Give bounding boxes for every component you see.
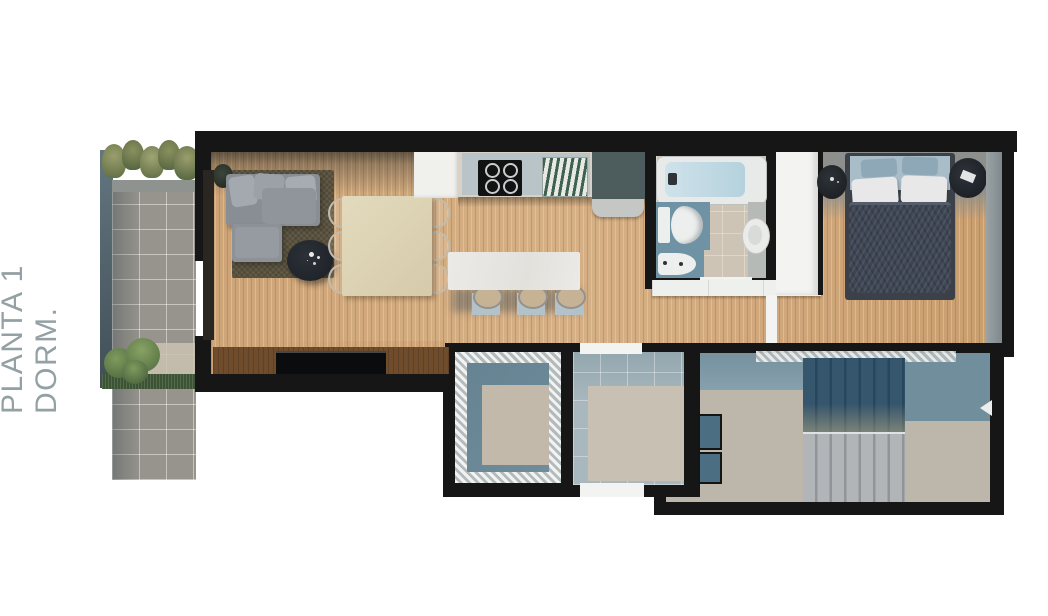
sofa-chaise-cushion <box>235 227 279 258</box>
patio-sliding-door <box>203 170 214 340</box>
sofa-seat-cushion <box>262 188 316 224</box>
stove <box>478 160 522 196</box>
bed-pillow-accent <box>861 158 898 178</box>
top-exterior-wall <box>195 131 1017 152</box>
bed <box>845 153 955 300</box>
staircase-upper-glow <box>803 358 905 432</box>
tv-screen <box>276 351 386 376</box>
bath-sink <box>742 218 770 254</box>
coffee-table <box>287 240 333 281</box>
stair-hall-corner-shadow <box>904 353 990 421</box>
living-bottom-wall <box>197 374 453 392</box>
lower-rooms-block <box>443 341 700 497</box>
storage-niche <box>698 414 722 450</box>
utility-room-rug <box>588 386 684 481</box>
lightwell-grating <box>455 352 561 483</box>
bed-duvet <box>849 202 951 293</box>
bed-pillow <box>901 175 948 205</box>
lightwell-floor <box>482 385 549 465</box>
bedroom-window-band <box>986 152 1002 343</box>
utility-room-floor <box>573 352 684 485</box>
dining-table <box>342 196 432 296</box>
bathtub-faucet-icon <box>668 173 677 185</box>
cabinet-seam <box>708 280 709 296</box>
bathroom <box>645 145 777 289</box>
table-decor <box>309 252 314 257</box>
kitchen-island <box>448 252 580 290</box>
utility-door-bottom <box>580 483 644 497</box>
right-exterior-wall <box>1002 131 1014 357</box>
nightstand <box>949 158 987 198</box>
bathtub <box>656 156 767 205</box>
burner-icon <box>503 179 518 194</box>
wardrobe <box>776 144 818 295</box>
bed-pillow-accent <box>902 156 939 175</box>
bush-icon <box>122 360 148 384</box>
toilet-tank <box>658 207 670 243</box>
door-swing-marker <box>980 400 992 416</box>
page-title: PLANTA 1 DORM. <box>8 162 52 414</box>
staircase-lower-flight <box>803 432 905 502</box>
burner-icon <box>485 179 500 194</box>
burner-icon <box>485 163 500 178</box>
tv-console <box>213 347 449 376</box>
floorplan-page: PLANTA 1 DORM. <box>0 0 1048 616</box>
burner-icon <box>503 163 518 178</box>
patio-plants-top <box>100 138 204 188</box>
nightstand-decor <box>830 177 834 181</box>
bidet <box>658 253 696 275</box>
nightstand-book <box>960 170 976 184</box>
patio-bushes <box>100 336 180 386</box>
hall-door-leaf <box>766 295 777 343</box>
storage-niche <box>698 452 722 484</box>
kitchen-appliance <box>592 199 644 217</box>
nightstand <box>817 165 847 199</box>
cabinet-seam <box>763 280 764 296</box>
bathtub-water <box>665 162 745 197</box>
dish-rack <box>542 157 588 197</box>
tall-cabinet-fridge <box>592 147 646 199</box>
bidet-tap-icon <box>663 261 667 265</box>
sink-basin <box>748 225 762 245</box>
